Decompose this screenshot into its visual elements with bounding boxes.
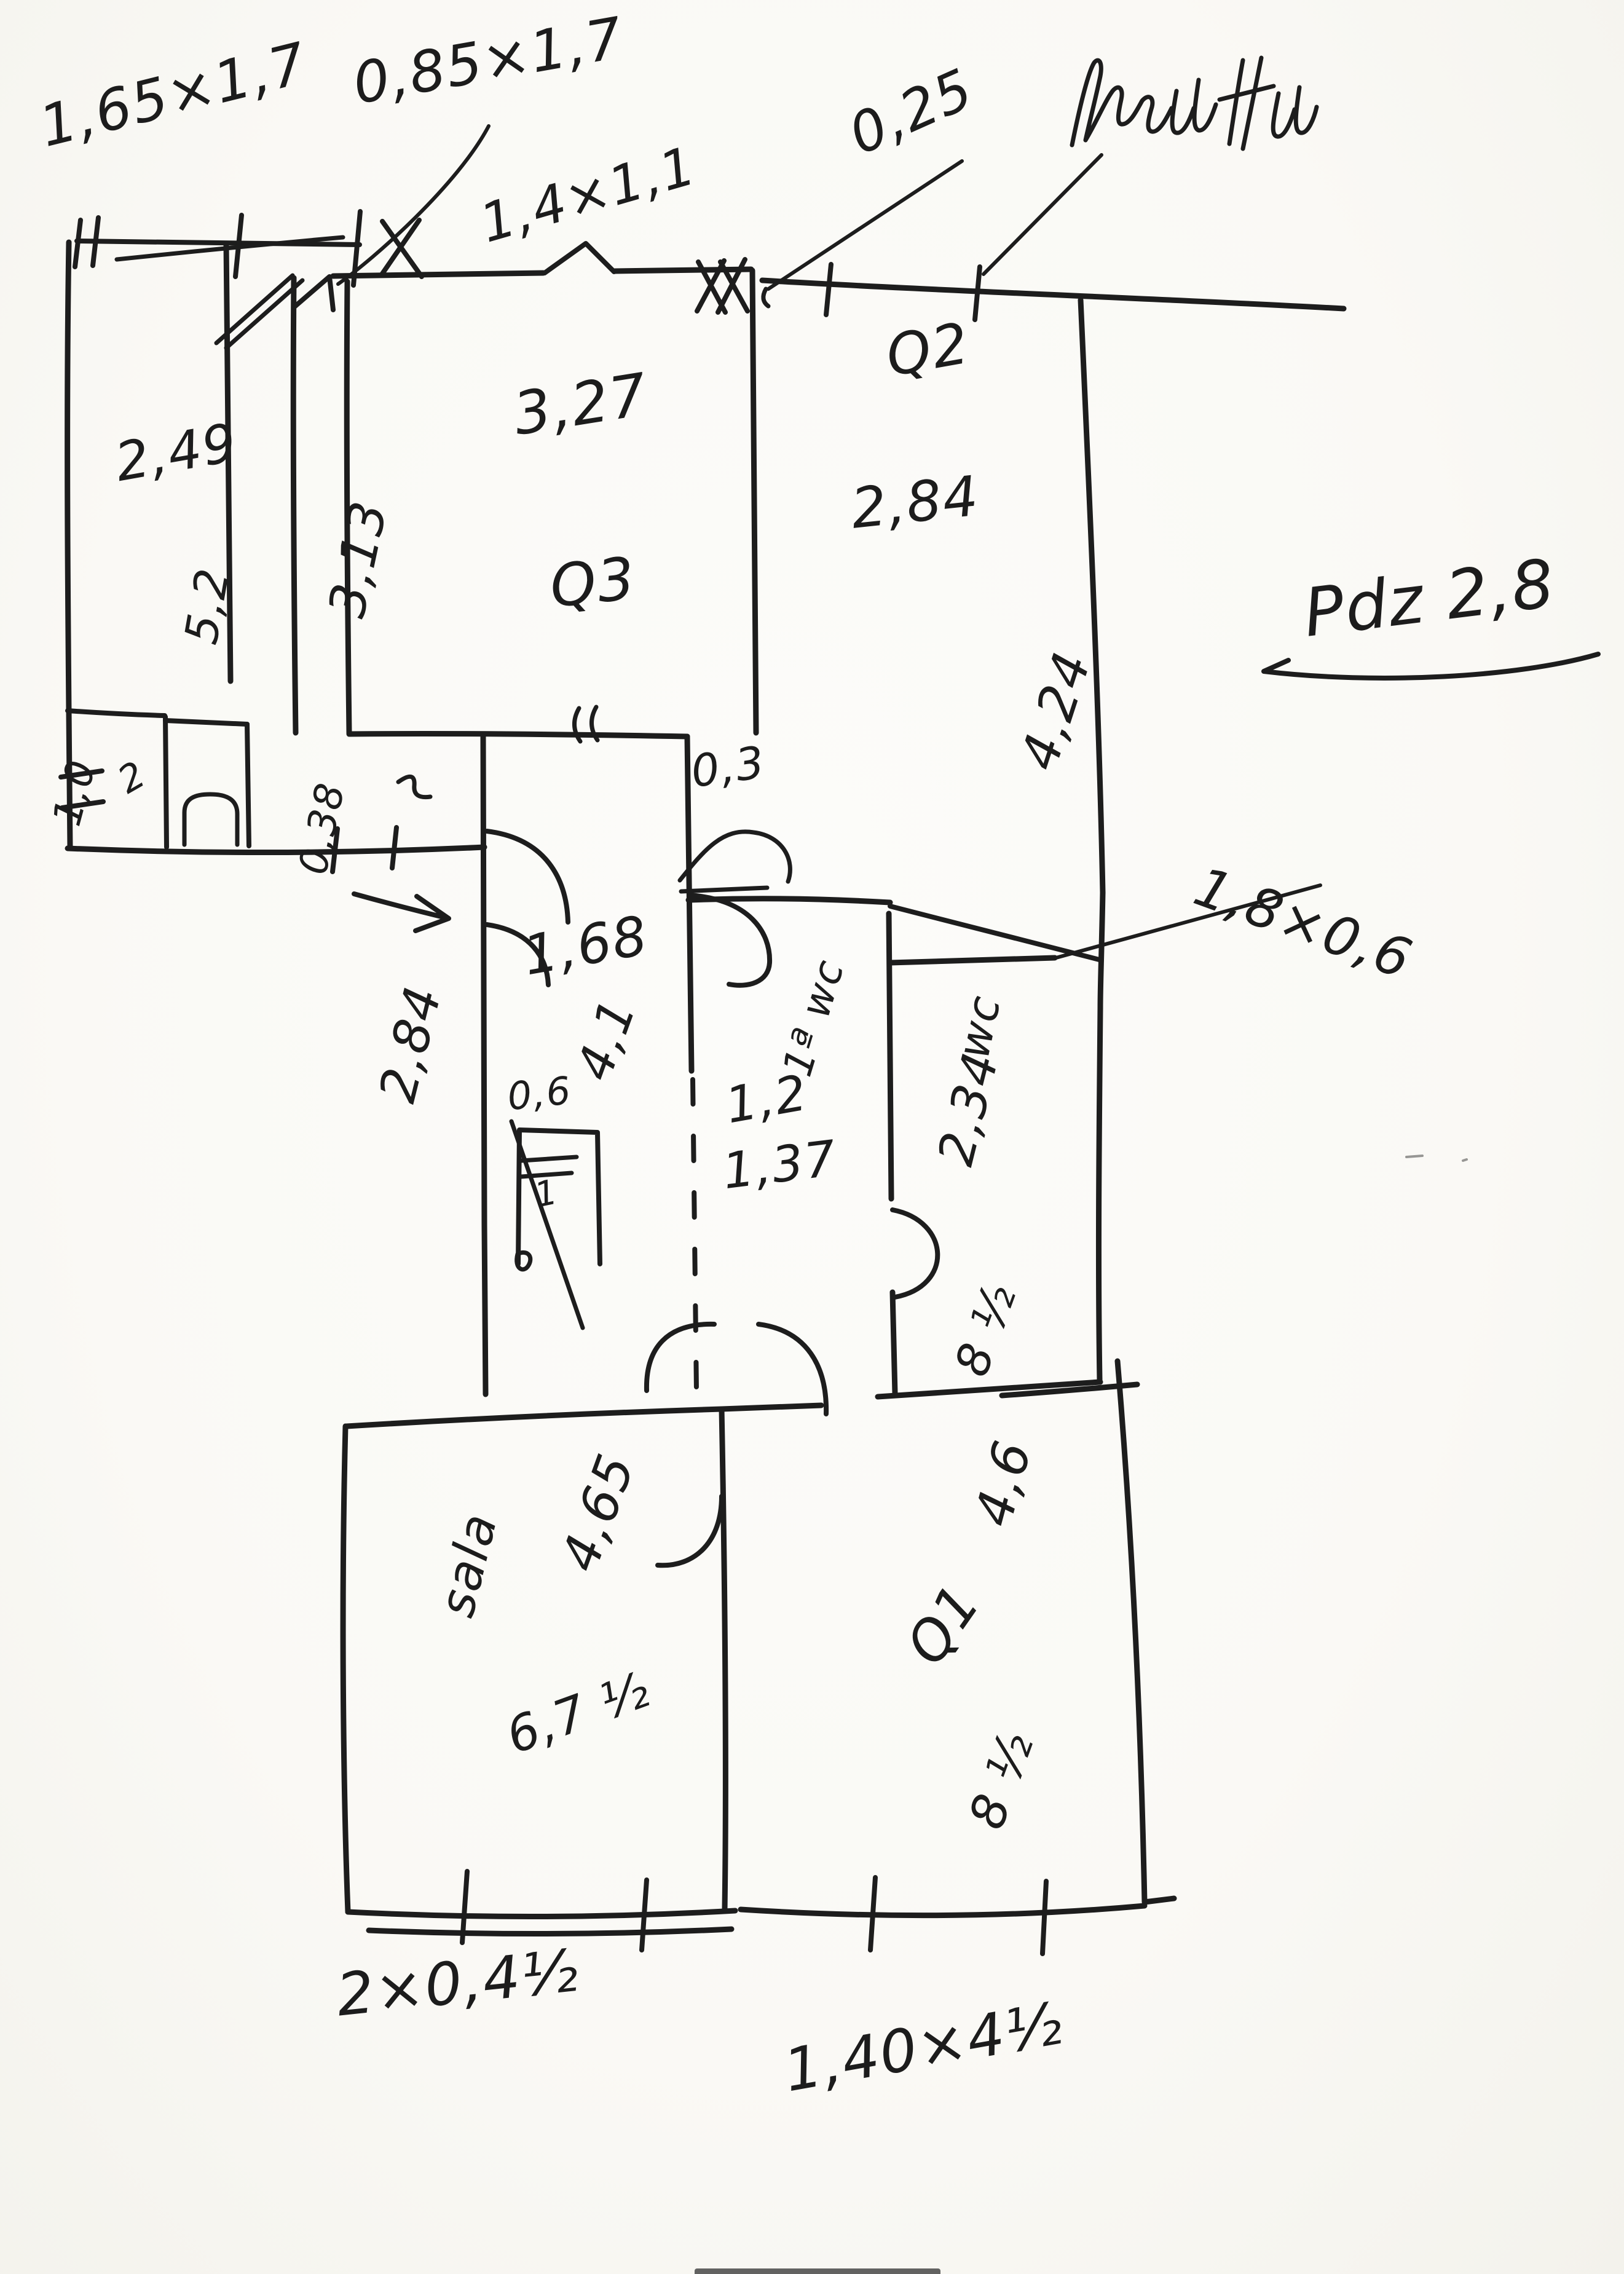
bottom-note-left: 2×0,4½ <box>333 1937 582 2030</box>
bath-width: 1,2 <box>722 1064 812 1135</box>
wc-depth: 2,34 <box>927 1046 1010 1171</box>
q2-top-wall <box>762 280 1344 309</box>
passage-door-mark <box>398 776 430 797</box>
sala-left-wall <box>343 1426 348 1912</box>
wc-corner-dim: 8 ½ <box>944 1276 1027 1383</box>
q2-height: 4,24 <box>1009 644 1103 777</box>
alcove-mark: 2 <box>111 752 154 802</box>
left-room-width: 2,49 <box>111 412 242 494</box>
sala-bottom-ticks <box>462 1871 647 1950</box>
hall-width: 1,68 <box>518 904 653 988</box>
midband-bottom-wall-right <box>878 1382 1137 1397</box>
closet-loop <box>517 1252 530 1269</box>
closet-walls <box>518 1130 600 1264</box>
hall-left-wall <box>483 736 486 1394</box>
left-room-left-wall <box>68 242 70 847</box>
alcove-top-wall <box>68 711 165 716</box>
fixture-basin <box>184 794 237 845</box>
dim-window: 1,4×1,1 <box>473 135 703 255</box>
niche-top-wall <box>165 720 247 724</box>
sala-bottom-dim: 6,7 ½ <box>499 1660 658 1765</box>
alcove-dim: 1,0 <box>44 755 105 831</box>
q2-name: Q2 <box>881 310 974 390</box>
note-underline <box>1264 654 1598 678</box>
wc-window-dim: 1,8×0,6 <box>1186 855 1421 992</box>
q3-bottom-wall <box>349 734 687 737</box>
paper-sheet: 1,65×1,7 0,85×1,7 1,4×1,1 0,25 Pdz 2,8 2… <box>0 0 1624 2274</box>
sala-q1-divider <box>722 1409 725 1909</box>
hall-stub-dim: 0,3 <box>688 736 768 797</box>
floorplan-sketch: 1,65×1,7 0,85×1,7 1,4×1,1 0,25 Pdz 2,8 2… <box>0 0 1624 2274</box>
q3-top-wall-cont <box>615 269 751 271</box>
bath-door-bump <box>690 895 770 985</box>
q3-q2-divider-wall <box>752 270 756 733</box>
passage-door-dim: 0,38 <box>291 778 355 878</box>
wc-top-wall <box>890 958 1055 963</box>
midband-bottom-wall-left <box>347 1405 821 1426</box>
left-section-bottom-wall <box>68 847 484 853</box>
illegible-scribble-word <box>1072 58 1317 149</box>
q2-width: 2,84 <box>848 464 982 542</box>
paper-specks <box>1406 1156 1467 1161</box>
sala-width: 4,65 <box>549 1446 647 1579</box>
q1-bottom-wall <box>741 1906 1145 1916</box>
bath-wc-divider <box>889 914 895 1393</box>
leader-line-offset <box>768 161 962 289</box>
q1-name: Q1 <box>894 1573 993 1676</box>
scan-edge-shadow <box>695 2268 940 2274</box>
q3-name: Q3 <box>547 545 639 621</box>
wc-door-arc <box>893 1210 937 1297</box>
niche-left-wall <box>165 717 167 847</box>
sala-name: sala <box>428 1507 508 1622</box>
bath-name: 1ª wc <box>773 953 853 1081</box>
leader-line-door-b <box>338 126 489 284</box>
note-pdz: Pdz 2,8 <box>1299 545 1559 652</box>
q1-corner-dim: 8 ½ <box>958 1724 1045 1836</box>
hall-right-wall <box>687 736 692 1071</box>
hall-outer-dim: 2,84 <box>368 980 453 1108</box>
closet-mark: 1 <box>531 1172 562 1215</box>
bottom-note-right: 1,40×4½ <box>779 1990 1068 2106</box>
bath-partition-dim: 1,37 <box>720 1129 840 1200</box>
hall-right-wall-dashed <box>693 1080 696 1391</box>
closet-width: 0,6 <box>505 1068 574 1119</box>
hall-length: 4,1 <box>566 991 647 1088</box>
q2-top-wall-hook <box>763 289 768 306</box>
q1-height: 4,6 <box>963 1434 1044 1532</box>
right-wall-upper <box>1081 300 1103 893</box>
hall-door-arc-1 <box>487 831 568 922</box>
niche-right-wall <box>247 724 249 846</box>
q3-top-wall <box>333 273 543 276</box>
right-wall-lower <box>1098 893 1103 1381</box>
sala-bottom-wall <box>348 1911 735 1934</box>
window-triangle <box>545 243 614 273</box>
q3-width: 3,27 <box>509 361 653 449</box>
entry-arrow <box>354 894 449 931</box>
hall-door-squiggle-line <box>681 888 767 891</box>
floorplan-labels: 1,65×1,7 0,85×1,7 1,4×1,1 0,25 Pdz 2,8 2… <box>33 5 1559 2106</box>
leader-line-scribble <box>983 155 1102 274</box>
dim-door-a: 1,65×1,7 <box>33 30 314 160</box>
dim-door-b: 0,85×1,7 <box>348 5 628 117</box>
hall-door-squiggle <box>680 832 790 882</box>
closet-diagonal <box>511 1121 583 1328</box>
dim-offset: 0,25 <box>840 57 983 168</box>
bottom-junction-door-arcs <box>647 1324 826 1565</box>
q1-right-wall <box>1117 1361 1174 1902</box>
q3-height: 3,13 <box>318 495 400 622</box>
